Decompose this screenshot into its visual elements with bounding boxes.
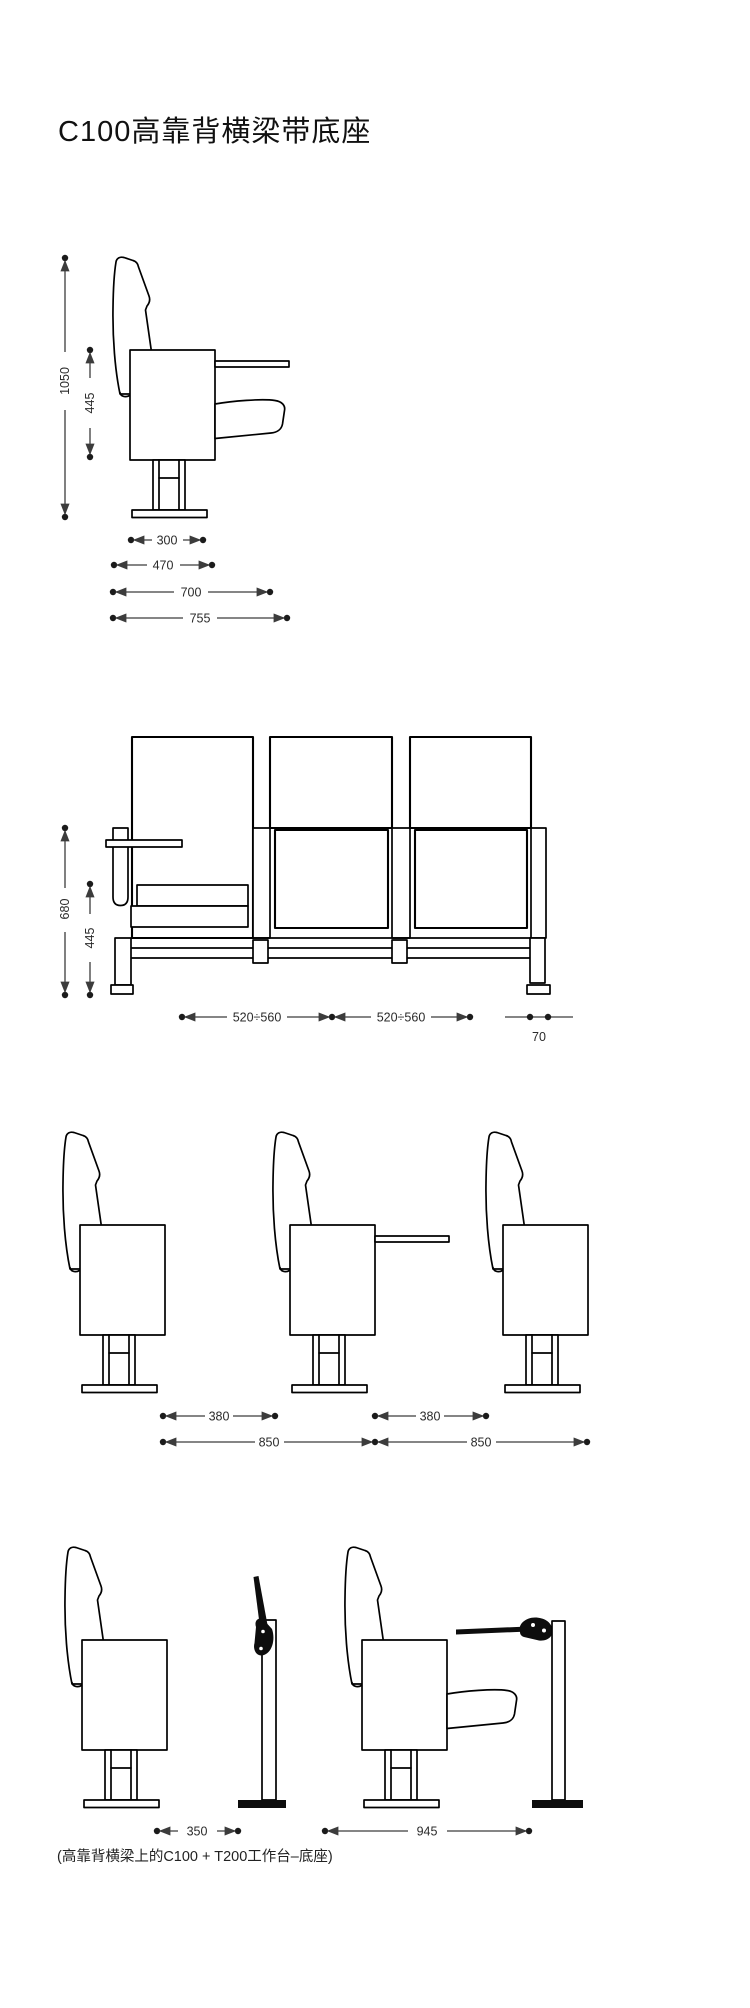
dim-seat-pitch-right-label: 520÷560 <box>377 1011 426 1025</box>
open-seat-cushion-top <box>137 885 248 906</box>
dim-base-width-label: 300 <box>157 534 178 548</box>
hinge-pin-2b <box>542 1629 546 1633</box>
hinge-pin-2a <box>531 1623 535 1627</box>
beam-bracket-2 <box>392 940 407 963</box>
chair-middle <box>273 1132 375 1392</box>
workstation-folded <box>238 1576 286 1808</box>
left-foot <box>111 985 133 994</box>
dim-seat-depth: 470 <box>111 559 215 573</box>
writing-tablet-arm <box>215 361 289 367</box>
technical-drawing-canvas: 1050 445 300 470 <box>0 0 750 2008</box>
chair-plain <box>65 1547 167 1807</box>
dim-row-spacing-right-label: 850 <box>471 1436 492 1450</box>
dim-row-spacing-945: 945 <box>322 1825 532 1839</box>
right-leg <box>530 938 545 983</box>
dim-seat-pitch-right: 520÷560 <box>335 1011 473 1025</box>
folded-seat-panel-2 <box>275 830 388 928</box>
workstation-foot-2 <box>532 1800 583 1808</box>
dim-seat-height-front-label: 445 <box>83 928 97 949</box>
folded-seat-panel-3 <box>415 830 527 928</box>
dim-clearance-right: 380 <box>372 1410 489 1424</box>
hinge-pin-1a <box>261 1630 265 1634</box>
beam-bracket-1 <box>253 940 268 963</box>
dim-clearance-350-label: 350 <box>187 1825 208 1839</box>
armrest-post-end <box>531 828 546 938</box>
tablet-armrest-bar <box>106 840 182 847</box>
dim-seat-height-front: 445 <box>83 881 97 998</box>
dim-clearance-right-label: 380 <box>420 1410 441 1424</box>
dim-back-height: 680 <box>58 825 72 998</box>
dim-back-height-label: 680 <box>58 899 72 920</box>
dim-seat-height-label: 445 <box>83 393 97 414</box>
tablet-hinge-2 <box>520 1618 553 1641</box>
dim-row-spacing-left-label: 850 <box>259 1436 280 1450</box>
left-leg <box>115 938 131 985</box>
chair-right <box>486 1132 588 1392</box>
dim-row-spacing-right: 850 <box>378 1436 590 1450</box>
dim-depth-overall: 755 <box>110 612 290 626</box>
hinge-pin-1b <box>259 1647 263 1651</box>
chair-with-tablet <box>345 1547 447 1807</box>
dim-clearance-left-label: 380 <box>209 1410 230 1424</box>
figure-three-seats-side: 380 380 850 850 <box>63 1132 590 1449</box>
armrest-post-2 <box>392 828 410 938</box>
dim-clearance-left: 380 <box>160 1410 278 1424</box>
armrest <box>215 400 285 439</box>
dim-total-height-label: 1050 <box>58 367 72 395</box>
chair-middle-tablet-arm <box>375 1236 449 1242</box>
backrest-3 <box>410 737 531 828</box>
drawing-page: C100高靠背横梁带底座 <box>0 0 750 2008</box>
workstation-post-2 <box>552 1621 565 1800</box>
dim-row-spacing-945-label: 945 <box>417 1825 438 1839</box>
figure-seat-with-workstation: 350 945 <box>65 1547 583 1838</box>
dim-clearance-350: 350 <box>154 1825 241 1839</box>
dim-row-spacing-left: 850 <box>160 1436 378 1450</box>
figure-caption: (高靠背横梁上的C100 + T200工作台–底座) <box>57 1845 333 1866</box>
chair-side-view <box>113 257 215 517</box>
dim-depth-overall-label: 755 <box>190 612 211 626</box>
dim-seat-depth-label: 470 <box>153 559 174 573</box>
backrest-2 <box>270 737 392 828</box>
dim-seat-height-side: 445 <box>83 347 97 460</box>
armrest-post-1 <box>253 828 270 938</box>
chair-left <box>63 1132 165 1392</box>
dim-leg-offset: 70 <box>505 1014 573 1044</box>
right-foot <box>527 985 550 994</box>
figure-beam-row-front: 680 445 520÷560 520÷560 <box>58 737 573 1044</box>
dim-leg-offset-label: 70 <box>532 1030 546 1044</box>
open-seat-cushion-bottom <box>131 906 248 927</box>
dim-seat-pitch-left: 520÷560 <box>179 1011 335 1025</box>
dim-seat-pitch-left-label: 520÷560 <box>233 1011 282 1025</box>
workstation-foot-1 <box>238 1800 286 1808</box>
dim-base-width: 300 <box>128 534 206 548</box>
figure-single-seat-side: 1050 445 300 470 <box>58 255 290 626</box>
dim-depth-closed-label: 700 <box>181 586 202 600</box>
dim-depth-closed: 700 <box>110 586 273 600</box>
chair-armrest <box>447 1690 517 1729</box>
dim-total-height: 1050 <box>58 255 72 520</box>
